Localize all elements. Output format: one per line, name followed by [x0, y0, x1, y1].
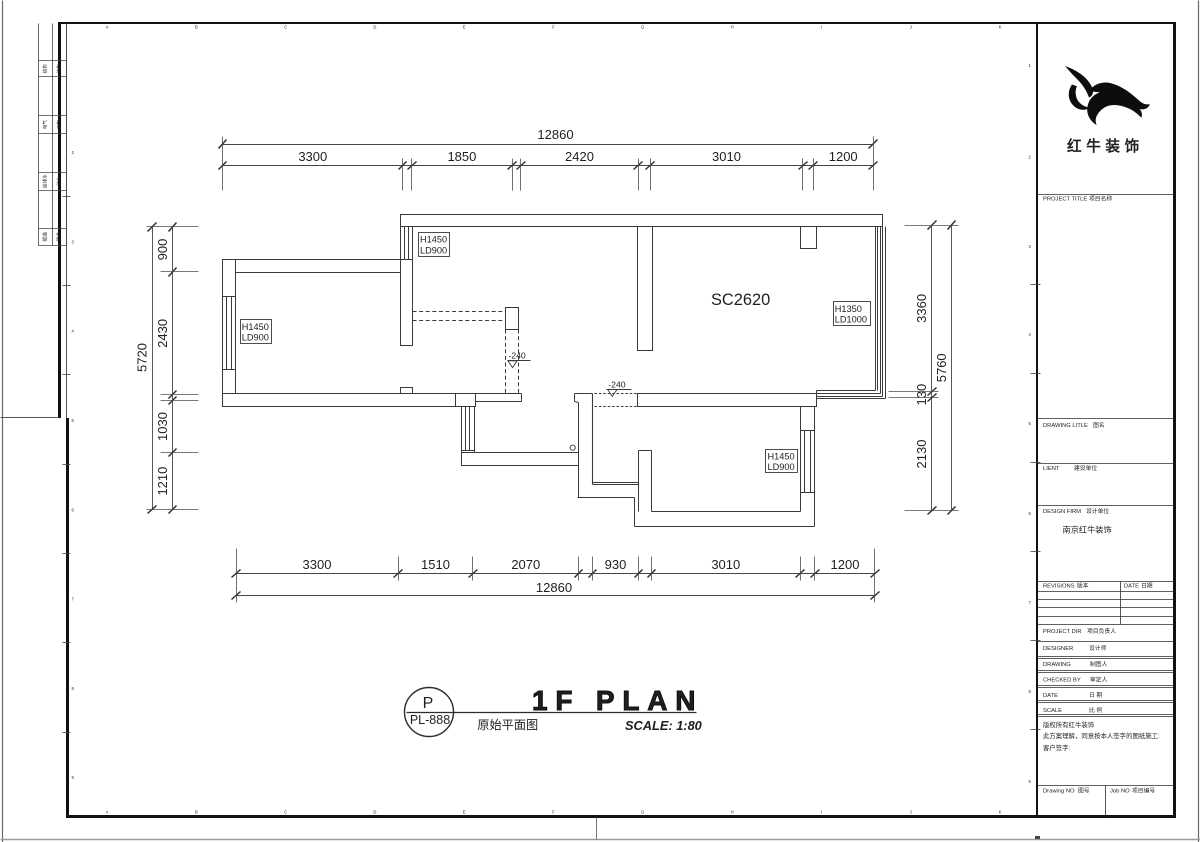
svg-text:图名: 图名 [1093, 421, 1105, 429]
svg-text:I: I [821, 25, 822, 30]
svg-text:A: A [106, 25, 109, 30]
svg-text:电气: 电气 [42, 120, 48, 130]
svg-text:3010: 3010 [711, 557, 740, 572]
svg-text:PL-888: PL-888 [410, 713, 450, 727]
svg-text:DRAWING LITLE: DRAWING LITLE [1043, 423, 1088, 429]
svg-text:审定人: 审定人 [1090, 676, 1108, 684]
svg-text:比 例: 比 例 [1089, 706, 1102, 714]
svg-text:LD1000: LD1000 [835, 315, 867, 325]
svg-text:5720: 5720 [135, 343, 150, 372]
svg-text:2420: 2420 [565, 149, 594, 164]
svg-text:D: D [373, 25, 376, 30]
svg-text:设计单位: 设计单位 [1086, 507, 1109, 515]
svg-text:红牛装饰: 红牛装饰 [1067, 137, 1144, 155]
svg-text:3300: 3300 [303, 557, 332, 572]
svg-text:D: D [373, 810, 376, 815]
svg-text:C: C [284, 810, 287, 815]
svg-text:LD900: LD900 [420, 245, 447, 255]
svg-text:2430: 2430 [155, 319, 170, 348]
svg-text:制图人: 制图人 [1090, 660, 1108, 668]
svg-text:LD900: LD900 [768, 462, 795, 472]
svg-text:暖通: 暖通 [56, 232, 63, 242]
svg-text:H1450: H1450 [768, 451, 795, 461]
svg-text:1F PLAN: 1F PLAN [532, 685, 703, 716]
svg-text:3360: 3360 [914, 294, 929, 323]
svg-text:K: K [999, 25, 1002, 30]
svg-text:3300: 3300 [298, 149, 327, 164]
svg-text:原始平面图: 原始平面图 [477, 718, 538, 732]
svg-text:电气: 电气 [56, 120, 62, 130]
svg-text:J: J [910, 25, 912, 30]
svg-text:日 期: 日 期 [1089, 692, 1102, 699]
svg-text:1200: 1200 [829, 149, 858, 164]
svg-text:SCALE: SCALE [1043, 708, 1062, 714]
svg-text:DESIGNER: DESIGNER [1043, 646, 1073, 652]
svg-text:DESIGN FIRM: DESIGN FIRM [1043, 509, 1081, 515]
svg-text:5760: 5760 [934, 353, 949, 382]
svg-text:F: F [552, 25, 555, 30]
svg-text:给水: 给水 [56, 176, 63, 186]
svg-text:130: 130 [914, 384, 929, 406]
svg-text:项目负责人: 项目负责人 [1087, 627, 1116, 635]
svg-text:结构: 结构 [56, 64, 63, 74]
svg-text:日期: 日期 [1141, 583, 1153, 590]
svg-text:版本: 版本 [1077, 582, 1089, 590]
svg-text:G: G [641, 810, 644, 815]
svg-text:930: 930 [605, 557, 627, 572]
svg-text:E: E [463, 810, 466, 815]
svg-text:CHECKED BY: CHECKED BY [1043, 678, 1081, 684]
svg-text:版权所有红牛装饰: 版权所有红牛装饰 [1043, 720, 1095, 729]
svg-text:1850: 1850 [447, 149, 476, 164]
svg-text:设计师: 设计师 [1089, 644, 1107, 652]
svg-text:1200: 1200 [831, 557, 860, 572]
svg-text:12860: 12860 [536, 580, 572, 595]
svg-text:REVISIONS: REVISIONS [1043, 584, 1075, 590]
svg-text:1210: 1210 [155, 467, 170, 496]
svg-text:2070: 2070 [511, 557, 540, 572]
svg-text:图号: 图号 [1078, 787, 1090, 795]
svg-text:I: I [821, 810, 822, 815]
svg-text:K: K [999, 810, 1002, 815]
svg-text:LIENT: LIENT [1043, 466, 1060, 472]
svg-text:H: H [731, 810, 734, 815]
svg-text:H1450: H1450 [420, 235, 447, 245]
svg-text:A: A [106, 810, 109, 815]
svg-text:H1450: H1450 [242, 322, 269, 332]
svg-text:900: 900 [155, 239, 170, 261]
svg-text:F: F [552, 810, 555, 815]
svg-text:P: P [423, 695, 434, 712]
svg-text:项目名称: 项目名称 [1089, 195, 1112, 203]
svg-text:E: E [463, 25, 466, 30]
svg-text:-240: -240 [608, 380, 625, 390]
svg-text:H1350: H1350 [835, 304, 862, 314]
svg-text:建设单位: 建设单位 [1074, 464, 1097, 472]
svg-text:J: J [910, 810, 912, 815]
svg-text:暖通: 暖通 [42, 232, 49, 242]
svg-text:B: B [195, 25, 198, 30]
svg-text:DRAWING: DRAWING [1043, 662, 1071, 668]
svg-text:项目编号: 项目编号 [1132, 787, 1155, 795]
svg-text:2130: 2130 [914, 440, 929, 469]
svg-text:Job NO: Job NO [1110, 789, 1130, 795]
svg-text:B: B [195, 810, 198, 815]
svg-text:南京红牛装饰: 南京红牛装饰 [1063, 525, 1112, 535]
svg-text:Drawing NO: Drawing NO [1043, 789, 1075, 795]
svg-text:客户签字:: 客户签字: [1043, 743, 1071, 752]
svg-text:DATE: DATE [1124, 584, 1139, 590]
svg-text:此方案理解，同意按本人签字的图纸施工:: 此方案理解，同意按本人签字的图纸施工: [1043, 731, 1160, 740]
svg-text:PROJECT TITLE: PROJECT TITLE [1043, 197, 1087, 203]
svg-text:1030: 1030 [155, 412, 170, 441]
svg-text:-240: -240 [509, 351, 526, 361]
svg-text:PROJECT DIR: PROJECT DIR [1043, 629, 1082, 635]
svg-text:12860: 12860 [537, 127, 573, 142]
svg-text:H: H [731, 25, 734, 30]
svg-text:DATE: DATE [1043, 693, 1058, 699]
svg-text:SCALE: 1:80: SCALE: 1:80 [625, 718, 702, 733]
svg-text:G: G [641, 25, 644, 30]
svg-text:给排水: 给排水 [42, 174, 49, 188]
svg-text:LD900: LD900 [242, 333, 269, 343]
svg-text:3010: 3010 [712, 149, 741, 164]
svg-text:SC2620: SC2620 [711, 291, 770, 309]
svg-text:1510: 1510 [421, 557, 450, 572]
svg-text:C: C [284, 25, 287, 30]
svg-text:结构: 结构 [42, 64, 49, 74]
